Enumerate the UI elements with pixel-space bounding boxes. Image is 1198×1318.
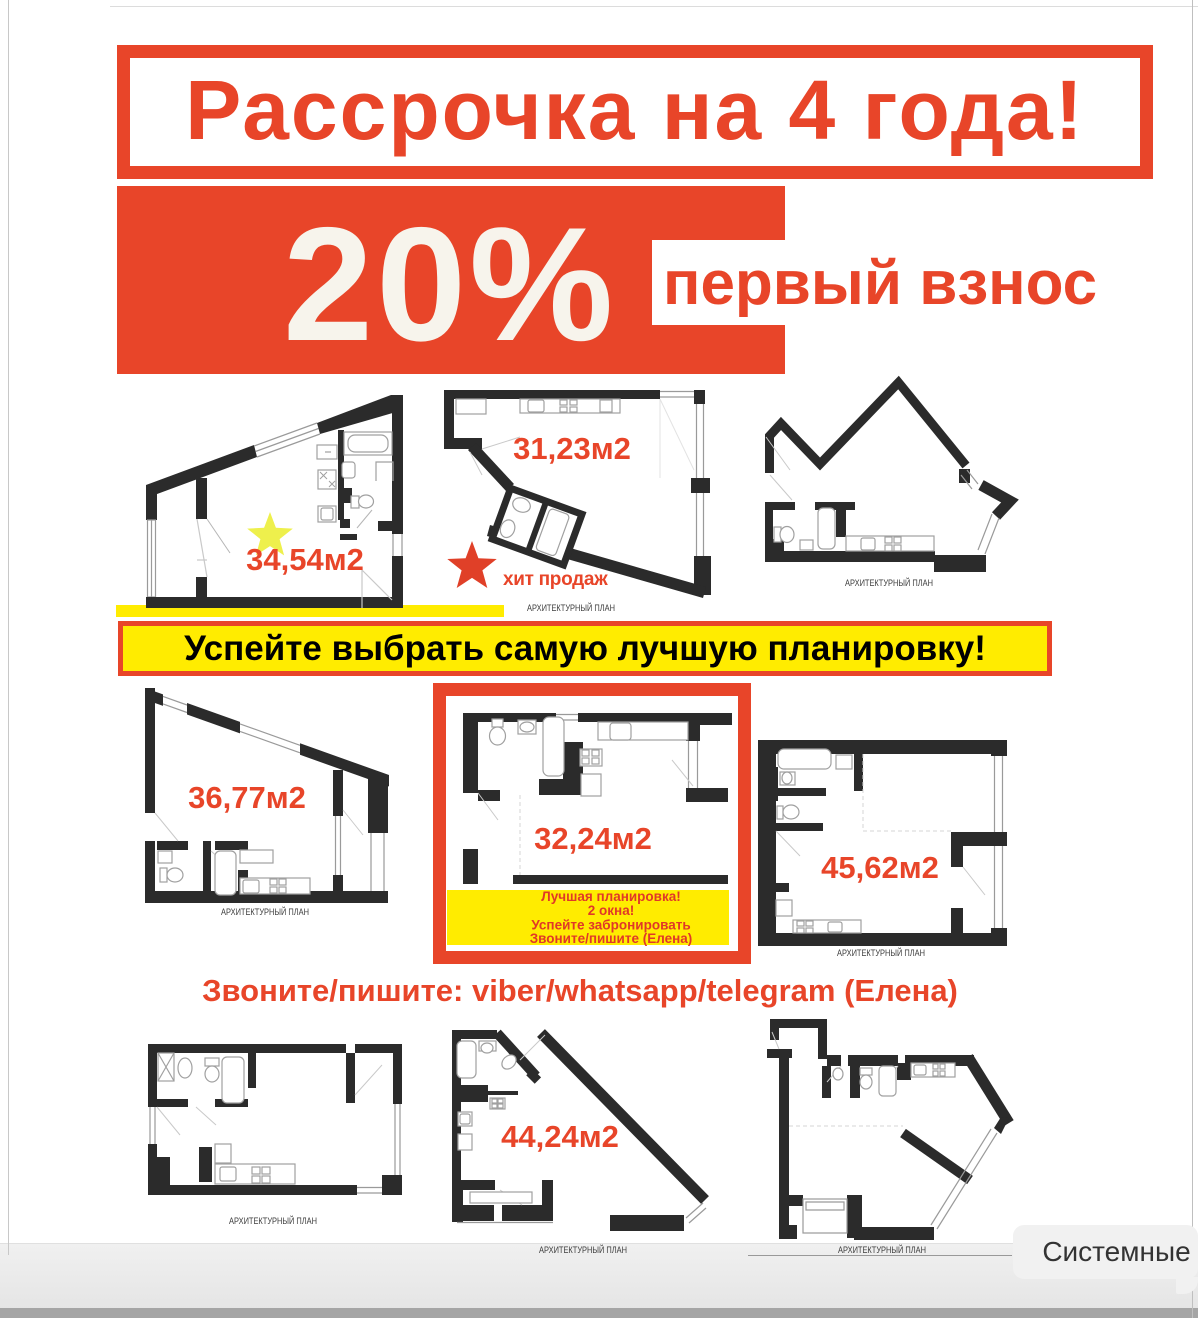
svg-text:АРХИТЕКТУРНЫЙ ПЛАН: АРХИТЕКТУРНЫЙ ПЛАН — [837, 947, 925, 958]
svg-text:АРХИТЕКТУРНЫЙ ПЛАН: АРХИТЕКТУРНЫЙ ПЛАН — [838, 1244, 926, 1255]
svg-text:32,24м2: 32,24м2 — [534, 821, 652, 856]
svg-text:Лучшая планировка!: Лучшая планировка! — [541, 889, 680, 904]
svg-text:Звоните/пишите (Елена): Звоните/пишите (Елена) — [530, 931, 693, 946]
svg-text:хит продаж: хит продаж — [503, 569, 608, 590]
svg-text:АРХИТЕКТУРНЫЙ ПЛАН: АРХИТЕКТУРНЫЙ ПЛАН — [229, 1215, 317, 1226]
svg-text:АРХИТЕКТУРНЫЙ ПЛАН: АРХИТЕКТУРНЫЙ ПЛАН — [527, 602, 615, 613]
svg-text:36,77м2: 36,77м2 — [188, 780, 306, 815]
svg-text:34,54м2: 34,54м2 — [246, 542, 364, 577]
svg-text:АРХИТЕКТУРНЫЙ ПЛАН: АРХИТЕКТУРНЫЙ ПЛАН — [539, 1244, 627, 1255]
svg-text:31,23м2: 31,23м2 — [513, 431, 631, 466]
svg-text:АРХИТЕКТУРНЫЙ ПЛАН: АРХИТЕКТУРНЫЙ ПЛАН — [845, 577, 933, 588]
svg-text:2 окна!: 2 окна! — [588, 903, 634, 918]
svg-text:45,62м2: 45,62м2 — [821, 850, 939, 885]
svg-text:44,24м2: 44,24м2 — [501, 1119, 619, 1154]
svg-text:АРХИТЕКТУРНЫЙ ПЛАН: АРХИТЕКТУРНЫЙ ПЛАН — [221, 906, 309, 917]
